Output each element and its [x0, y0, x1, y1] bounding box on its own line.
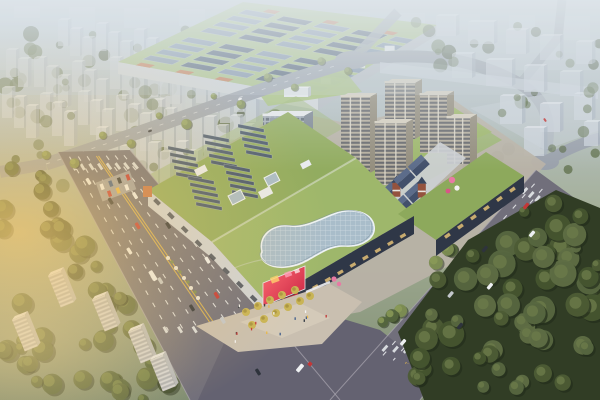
distance-haze [0, 0, 600, 95]
sun-glare [0, 0, 600, 400]
aerial-rendering [0, 0, 600, 400]
scene-svg [0, 0, 600, 400]
